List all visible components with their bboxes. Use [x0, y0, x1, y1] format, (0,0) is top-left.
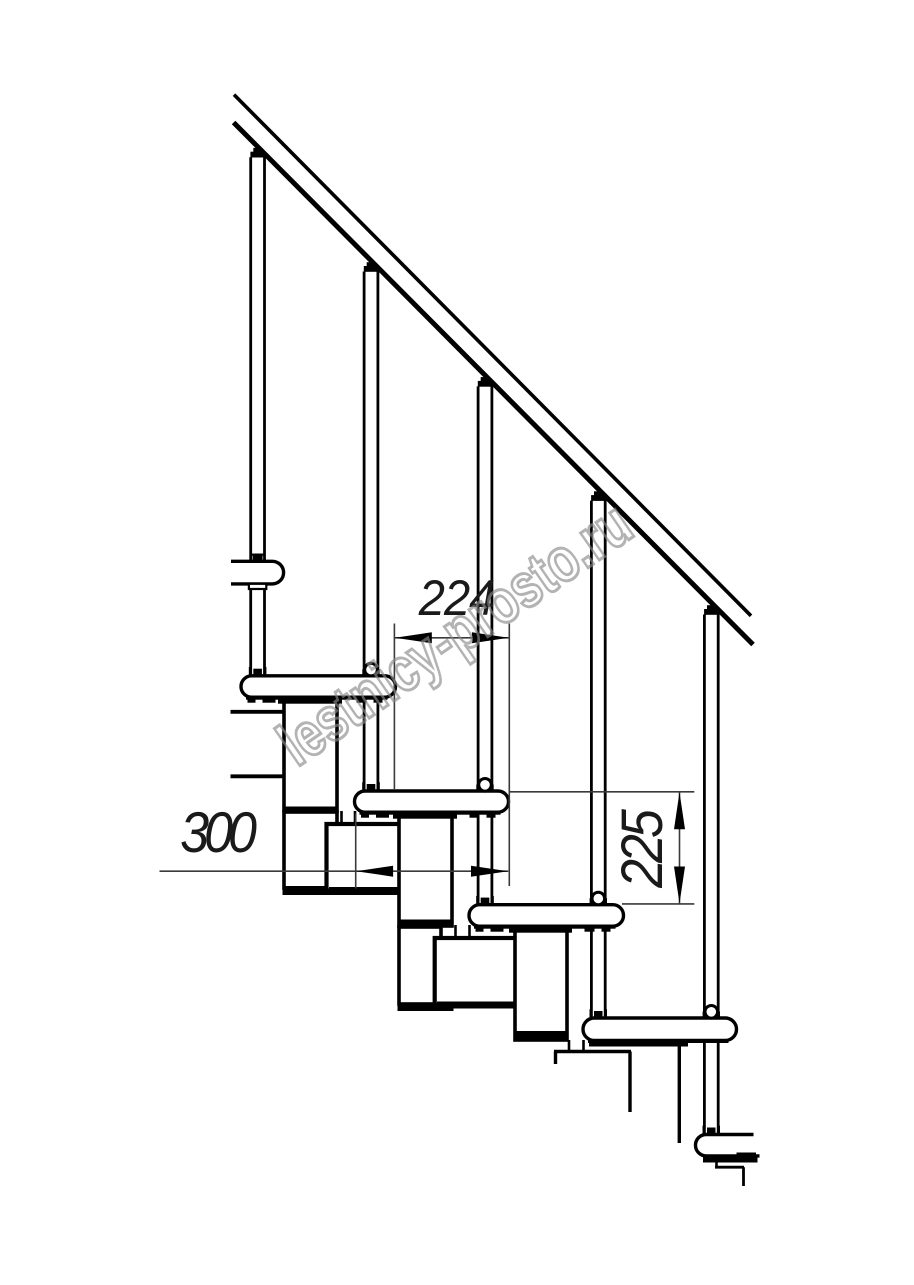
svg-text:300: 300: [180, 801, 256, 865]
svg-text:225: 225: [609, 809, 674, 889]
